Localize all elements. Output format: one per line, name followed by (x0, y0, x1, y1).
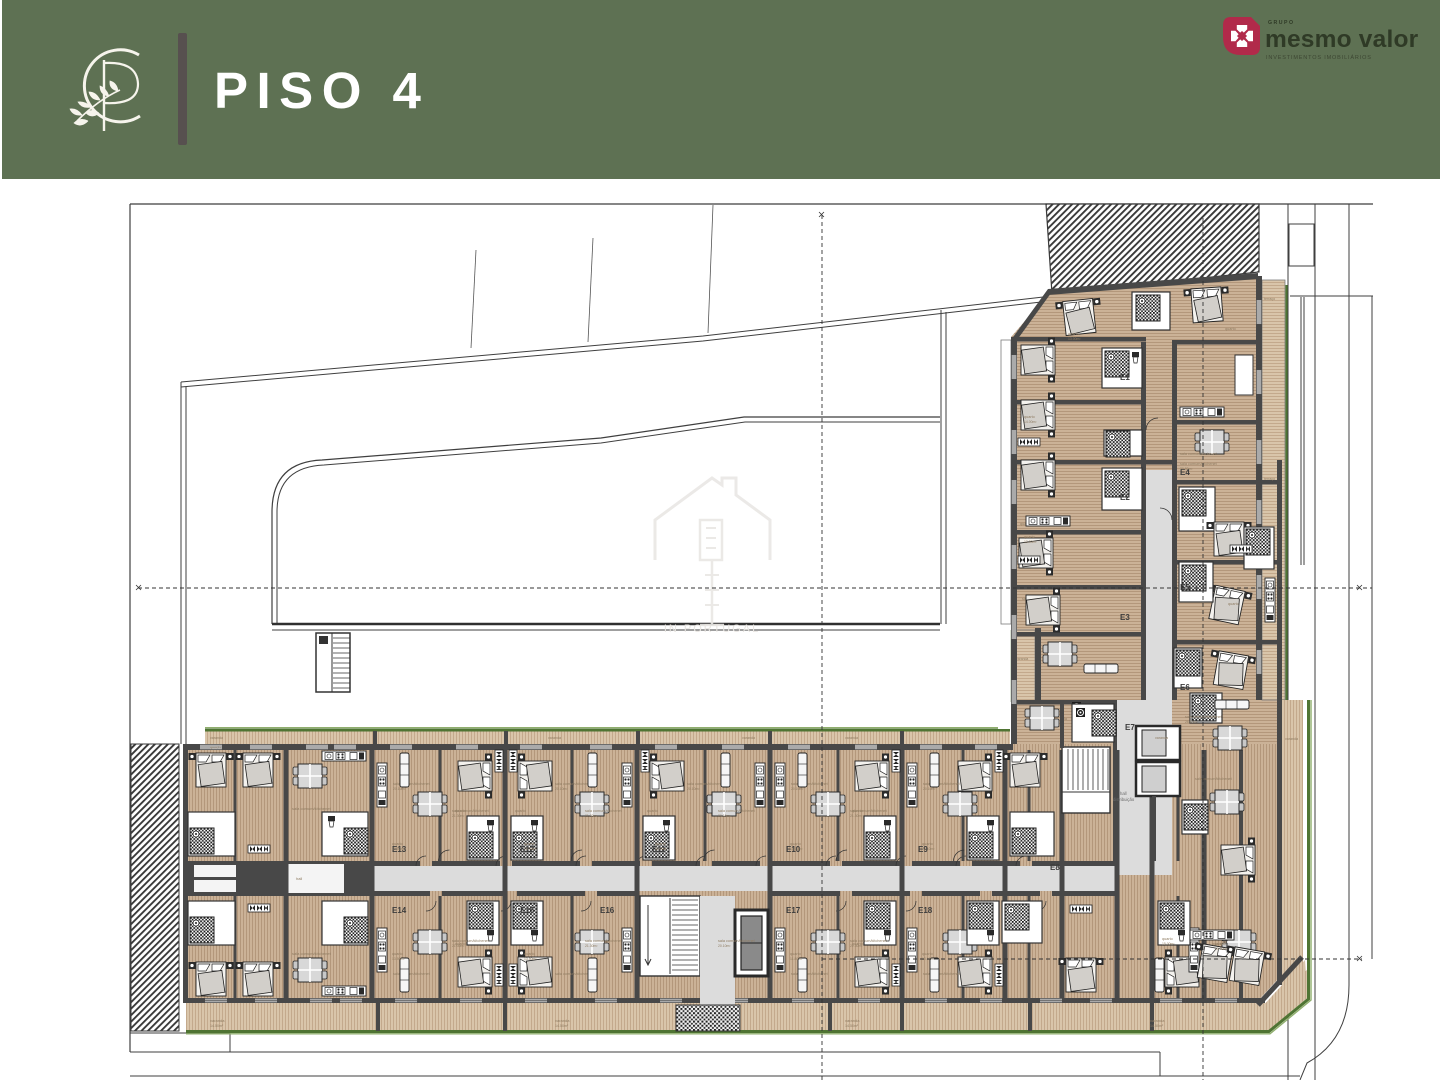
svg-text:quarto: quarto (922, 842, 933, 846)
svg-text:E7: E7 (1125, 723, 1135, 732)
svg-text:sala comum/kitchenet: sala comum/kitchenet (923, 972, 961, 976)
svg-text:quarto: quarto (524, 952, 535, 956)
svg-text:E16: E16 (600, 906, 615, 915)
svg-text:quarto: quarto (1162, 937, 1173, 941)
svg-text:varanda: varanda (210, 736, 223, 740)
svg-text:varanda: varanda (845, 736, 858, 740)
svg-text:E2: E2 (1120, 493, 1130, 502)
svg-text:20.10m²: 20.10m² (393, 787, 406, 791)
svg-text:sala comum/kitchenet: sala comum/kitchenet (555, 972, 593, 976)
svg-text:11.00m²: 11.00m² (655, 847, 668, 851)
svg-text:13.30m²: 13.30m² (1024, 540, 1037, 544)
svg-text:sala comum/kitchenet: sala comum/kitchenet (585, 939, 623, 943)
svg-text:quarto: quarto (210, 746, 221, 750)
svg-text:13.50m²: 13.50m² (392, 957, 405, 961)
svg-text:sala comum/kitchenet: sala comum/kitchenet (585, 809, 623, 813)
svg-text:quarto: quarto (1225, 327, 1236, 331)
svg-text:mesmo valor: mesmo valor (1265, 26, 1419, 53)
svg-text:quarto: quarto (1024, 535, 1035, 539)
svg-text:21.30m²: 21.30m² (452, 814, 465, 818)
svg-text:sala comum/kitchenet: sala comum/kitchenet (718, 809, 756, 813)
svg-text:11.80m²: 11.80m² (790, 957, 803, 961)
svg-text:E15: E15 (520, 906, 535, 915)
svg-text:varanda: varanda (210, 1018, 225, 1023)
svg-text:INVESTIMENTOS IMOBILIÁRIOS: INVESTIMENTOS IMOBILIÁRIOS (1266, 54, 1372, 61)
svg-text:quarto: quarto (1215, 942, 1226, 946)
svg-text:quarto: quarto (515, 809, 526, 813)
svg-text:quarto: quarto (790, 842, 801, 846)
svg-text:sala comum/kitchenet: sala comum/kitchenet (292, 806, 332, 811)
svg-text:13.10m²: 13.10m² (790, 847, 803, 851)
svg-text:21.30m²: 21.30m² (850, 814, 863, 818)
svg-text:20.10m²: 20.10m² (791, 787, 804, 791)
svg-text:sala comum/kitchenet: sala comum/kitchenet (1180, 462, 1218, 466)
svg-text:varanda: varanda (1016, 657, 1028, 661)
svg-text:IN PORTUGAL: IN PORTUGAL (664, 623, 760, 635)
svg-text:14.50m²: 14.50m² (1150, 1024, 1164, 1028)
svg-text:sala comum/kitchenet: sala comum/kitchenet (1180, 452, 1218, 456)
svg-text:quarto: quarto (1068, 332, 1079, 336)
svg-text:20.10m²: 20.10m² (718, 944, 731, 948)
svg-text:hall: hall (1120, 791, 1127, 796)
svg-text:E18: E18 (918, 906, 933, 915)
svg-text:13.50m²: 13.50m² (524, 957, 537, 961)
svg-text:21.30m²: 21.30m² (850, 944, 863, 948)
svg-text:varanda: varanda (1150, 1018, 1165, 1023)
svg-text:sala comum/kitchenet: sala comum/kitchenet (1195, 777, 1233, 781)
svg-text:sala comum/kitchenet: sala comum/kitchenet (718, 939, 756, 943)
svg-text:quarto: quarto (524, 842, 535, 846)
svg-text:E14: E14 (392, 906, 407, 915)
svg-text:varanda: varanda (742, 736, 755, 740)
svg-text:14.50m²: 14.50m² (555, 1024, 569, 1028)
svg-text:sala comum/kitchenet: sala comum/kitchenet (791, 782, 829, 786)
svg-text:varanda: varanda (1155, 736, 1168, 740)
svg-text:E1: E1 (1120, 373, 1130, 382)
svg-text:hall: hall (296, 876, 302, 881)
svg-text:21.30m²: 21.30m² (452, 944, 465, 948)
svg-text:terraço: terraço (1264, 477, 1275, 481)
svg-text:15.30m²: 15.30m² (1215, 947, 1228, 951)
svg-text:21.30m²: 21.30m² (585, 814, 598, 818)
svg-text:13.00m²: 13.00m² (1068, 337, 1081, 341)
svg-text:sala comum/kitchenet: sala comum/kitchenet (850, 809, 888, 813)
svg-text:sala comum/kitchenet: sala comum/kitchenet (791, 972, 829, 976)
svg-text:quarto: quarto (1228, 602, 1239, 606)
svg-text:quarto: quarto (655, 842, 666, 846)
svg-text:quarto: quarto (647, 809, 658, 813)
svg-text:21.30m²: 21.30m² (585, 944, 598, 948)
svg-text:sala comum/kitchenet: sala comum/kitchenet (850, 939, 888, 943)
svg-text:sala comum/kitchenet: sala comum/kitchenet (393, 972, 431, 976)
svg-text:PISO 4: PISO 4 (214, 62, 429, 119)
svg-text:distribuição: distribuição (1113, 797, 1135, 802)
svg-text:14.50m²: 14.50m² (845, 1024, 859, 1028)
svg-text:15.00m²: 15.00m² (1162, 942, 1175, 946)
svg-text:quarto: quarto (392, 952, 403, 956)
svg-text:sala comum/kitchenet: sala comum/kitchenet (923, 782, 961, 786)
svg-text:13.50m²: 13.50m² (524, 847, 537, 851)
svg-text:20.80m²: 20.80m² (1180, 467, 1193, 471)
svg-text:20.10m²: 20.10m² (718, 814, 731, 818)
svg-text:20.10m²: 20.10m² (687, 787, 700, 791)
svg-text:sala comum/kitchenet: sala comum/kitchenet (555, 782, 593, 786)
svg-text:20.10m²: 20.10m² (923, 787, 936, 791)
svg-text:varanda: varanda (1285, 737, 1298, 741)
svg-text:sala comum/kitchenet: sala comum/kitchenet (292, 951, 332, 956)
svg-text:E6: E6 (1180, 683, 1190, 692)
svg-text:varanda: varanda (548, 736, 561, 740)
svg-text:E3: E3 (1120, 613, 1130, 622)
svg-text:sala comum/kitchenet: sala comum/kitchenet (1185, 715, 1223, 719)
svg-text:varanda: varanda (845, 1018, 860, 1023)
svg-text:sala comum/kitchenet: sala comum/kitchenet (687, 782, 725, 786)
svg-text:13.10m²: 13.10m² (922, 847, 935, 851)
svg-text:quarto: quarto (392, 842, 403, 846)
svg-text:20.10m²: 20.10m² (555, 787, 568, 791)
svg-text:quarto: quarto (922, 952, 933, 956)
svg-text:26.50m²: 26.50m² (1185, 720, 1198, 724)
svg-text:E17: E17 (786, 906, 801, 915)
svg-text:14.50m²: 14.50m² (210, 1024, 224, 1028)
svg-text:sala comum/kitchenet: sala comum/kitchenet (452, 939, 490, 943)
svg-text:E5: E5 (1180, 583, 1190, 592)
svg-text:terraço: terraço (1264, 297, 1275, 301)
svg-text:E8: E8 (1050, 863, 1060, 872)
svg-text:varanda: varanda (555, 1018, 570, 1023)
svg-text:quarto: quarto (790, 952, 801, 956)
svg-text:sala comum/kitchenet: sala comum/kitchenet (452, 809, 490, 813)
svg-text:14.00m²: 14.00m² (1024, 420, 1037, 424)
svg-text:sala comum/kitchenet: sala comum/kitchenet (393, 782, 431, 786)
svg-text:quarto: quarto (1024, 415, 1035, 419)
svg-text:13.50m²: 13.50m² (392, 847, 405, 851)
